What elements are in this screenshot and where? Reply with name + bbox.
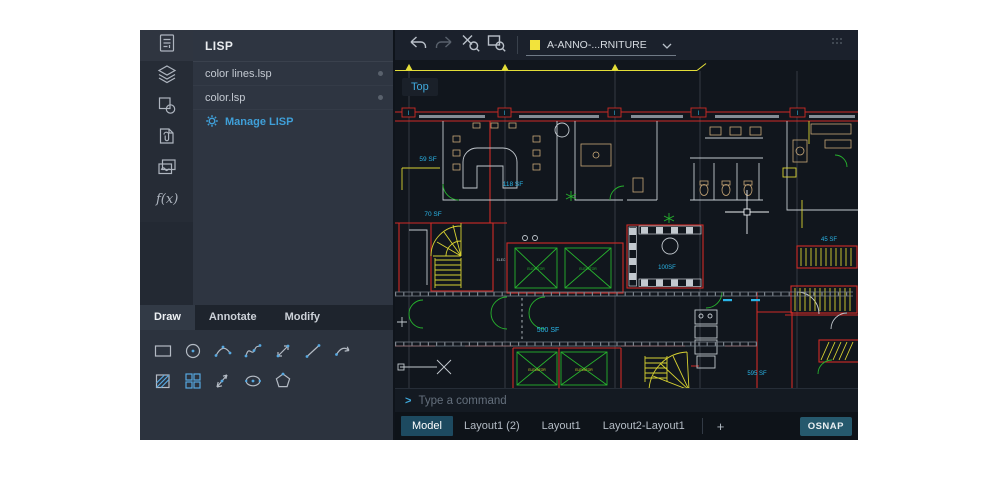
redo-icon [433,34,455,56]
stretch-tool-button[interactable] [268,338,298,368]
zoom-window-button[interactable] [483,33,509,57]
floorplan-drawing: I I I I I [395,60,858,388]
tab-layout2-layout1[interactable]: Layout2-Layout1 [592,416,696,436]
redo-button[interactable] [431,33,457,57]
svg-text:f(x): f(x) [155,192,178,207]
svg-text:45 SF: 45 SF [821,237,837,243]
room-labels: 59 SF 118 SF 70 SF 100SF 500 SF 595 SF 4… [419,156,837,377]
sidebar-item-views[interactable] [140,154,193,185]
sidebar-item-properties[interactable] [140,30,193,61]
zoom-selection-button[interactable] [457,33,483,57]
arc-tool-icon [213,341,233,366]
toolbar-divider [517,36,518,54]
undo-button[interactable] [405,33,431,57]
line-tool-icon [303,341,323,366]
svg-text:ELEVATOR: ELEVATOR [528,368,546,372]
layer-dropdown[interactable]: A-ANNO-...RNITURE [526,34,676,56]
hatch-tool-button[interactable] [148,368,178,398]
icon-rail: f(x) [140,30,193,305]
svg-text:118 SF: 118 SF [503,181,524,188]
polygon-tool-icon [273,371,293,396]
cyan-fixtures [723,299,760,301]
spline-tool-button[interactable] [238,338,268,368]
block-insert-tool-icon [183,371,203,396]
checker-stairs [629,226,701,287]
sidebar-item-attachments[interactable] [140,123,193,154]
zoom-selection-icon [460,32,481,58]
svg-text:ELEVATOR: ELEVATOR [575,368,593,372]
command-bar[interactable]: > Type a command [395,388,858,412]
canvas-toolbar: A-ANNO-...RNITURE [395,30,858,60]
lisp-panel-title: LISP [193,30,393,62]
circle-tool-icon [183,341,203,366]
rectangle-tool-icon [153,341,173,366]
attachments-icon [156,125,178,152]
rail-spacer [140,222,193,305]
lisp-file-item[interactable]: color.lsp [193,86,393,110]
drawing-area: A-ANNO-...RNITURE [393,30,858,440]
command-input-placeholder: Type a command [418,395,506,407]
tab-model[interactable]: Model [401,416,453,436]
toolbar-more-button[interactable] [824,33,850,57]
layer-color-swatch [530,40,540,50]
revcloud-tool-button[interactable] [328,338,358,368]
item-status-dot[interactable] [378,71,383,76]
stretch-tool-icon [273,341,293,366]
rectangle-tool-button[interactable] [148,338,178,368]
layer-name-label: A-ANNO-...RNITURE [547,39,655,51]
item-status-dot[interactable] [378,95,383,100]
osnap-toggle-button[interactable]: OSNAP [800,417,852,436]
hatch-tool-icon [153,371,173,396]
spline-tool-icon [243,341,263,366]
measure-tool-icon [213,371,233,396]
green-elements [409,155,847,385]
lisp-file-name: color.lsp [205,92,245,104]
svg-text:ELEVATOR: ELEVATOR [579,267,597,271]
model-viewport[interactable]: I I I I I [395,60,858,388]
ellipse-tool-button[interactable] [238,368,268,398]
block-insert-tool-button[interactable] [178,368,208,398]
undo-icon [407,34,429,56]
function-icon: f(x) [152,187,182,214]
layers-icon [156,63,178,90]
yellow-reference-line [395,64,706,71]
revcloud-tool-icon [333,341,353,366]
manage-lisp-label: Manage LISP [225,116,293,128]
panels-icon [156,32,178,59]
line-tool-button[interactable] [298,338,328,368]
sidebar-item-functions[interactable]: f(x) [140,185,193,216]
views-icon [156,156,178,183]
tab-modify[interactable]: Modify [271,305,334,330]
tab-annotate[interactable]: Annotate [195,305,271,330]
cad-app-window: f(x) LISP color lines.lsp color.lsp Mana… [140,30,858,440]
measure-tool-button[interactable] [208,368,238,398]
arc-tool-button[interactable] [208,338,238,368]
svg-text:595 SF: 595 SF [747,371,767,377]
lisp-panel: LISP color lines.lsp color.lsp Manage LI… [193,30,393,305]
view-cube-label[interactable]: Top [402,78,438,96]
elevator-labels: ELEVATOR ELEVATOR ELEVATOR ELEVATOR ELEC [497,258,598,372]
sidebar-item-blocks[interactable] [140,92,193,123]
sidebar-item-layers[interactable] [140,61,193,92]
zoom-window-icon [486,32,507,58]
svg-text:70 SF: 70 SF [424,211,441,218]
lisp-file-item[interactable]: color lines.lsp [193,62,393,86]
polygon-tool-button[interactable] [268,368,298,398]
svg-text:59 SF: 59 SF [419,156,436,163]
tab-layout1-2[interactable]: Layout1 (2) [453,416,531,436]
left-sidebar: f(x) LISP color lines.lsp color.lsp Mana… [140,30,393,440]
gear-icon [205,114,219,131]
manage-lisp-button[interactable]: Manage LISP [193,110,393,134]
ribbon-tab-bar: Draw Annotate Modify [140,305,393,330]
svg-text:ELEVATOR: ELEVATOR [527,267,545,271]
layout-tab-bar: Model Layout1 (2) Layout1 Layout2-Layout… [395,412,858,440]
more-grid-icon [831,36,843,54]
add-layout-button[interactable]: + [709,419,733,434]
tab-layout1[interactable]: Layout1 [531,416,592,436]
corridor-edges [395,292,853,346]
crosshair-cursor [725,190,769,234]
draw-tools-panel [140,330,393,440]
svg-text:500 SF: 500 SF [537,327,560,334]
tab-draw[interactable]: Draw [140,305,195,330]
grid-lines [409,71,797,388]
svg-text:100SF: 100SF [658,265,676,271]
circle-tool-button[interactable] [178,338,208,368]
chevron-down-icon [662,36,672,54]
blocks-icon [156,94,178,121]
ellipse-tool-icon [243,371,263,396]
tab-divider [702,418,703,434]
red-walls [395,112,858,388]
svg-text:ELEC: ELEC [497,258,506,262]
lisp-file-name: color lines.lsp [205,68,272,80]
command-prompt-icon: > [405,395,411,407]
